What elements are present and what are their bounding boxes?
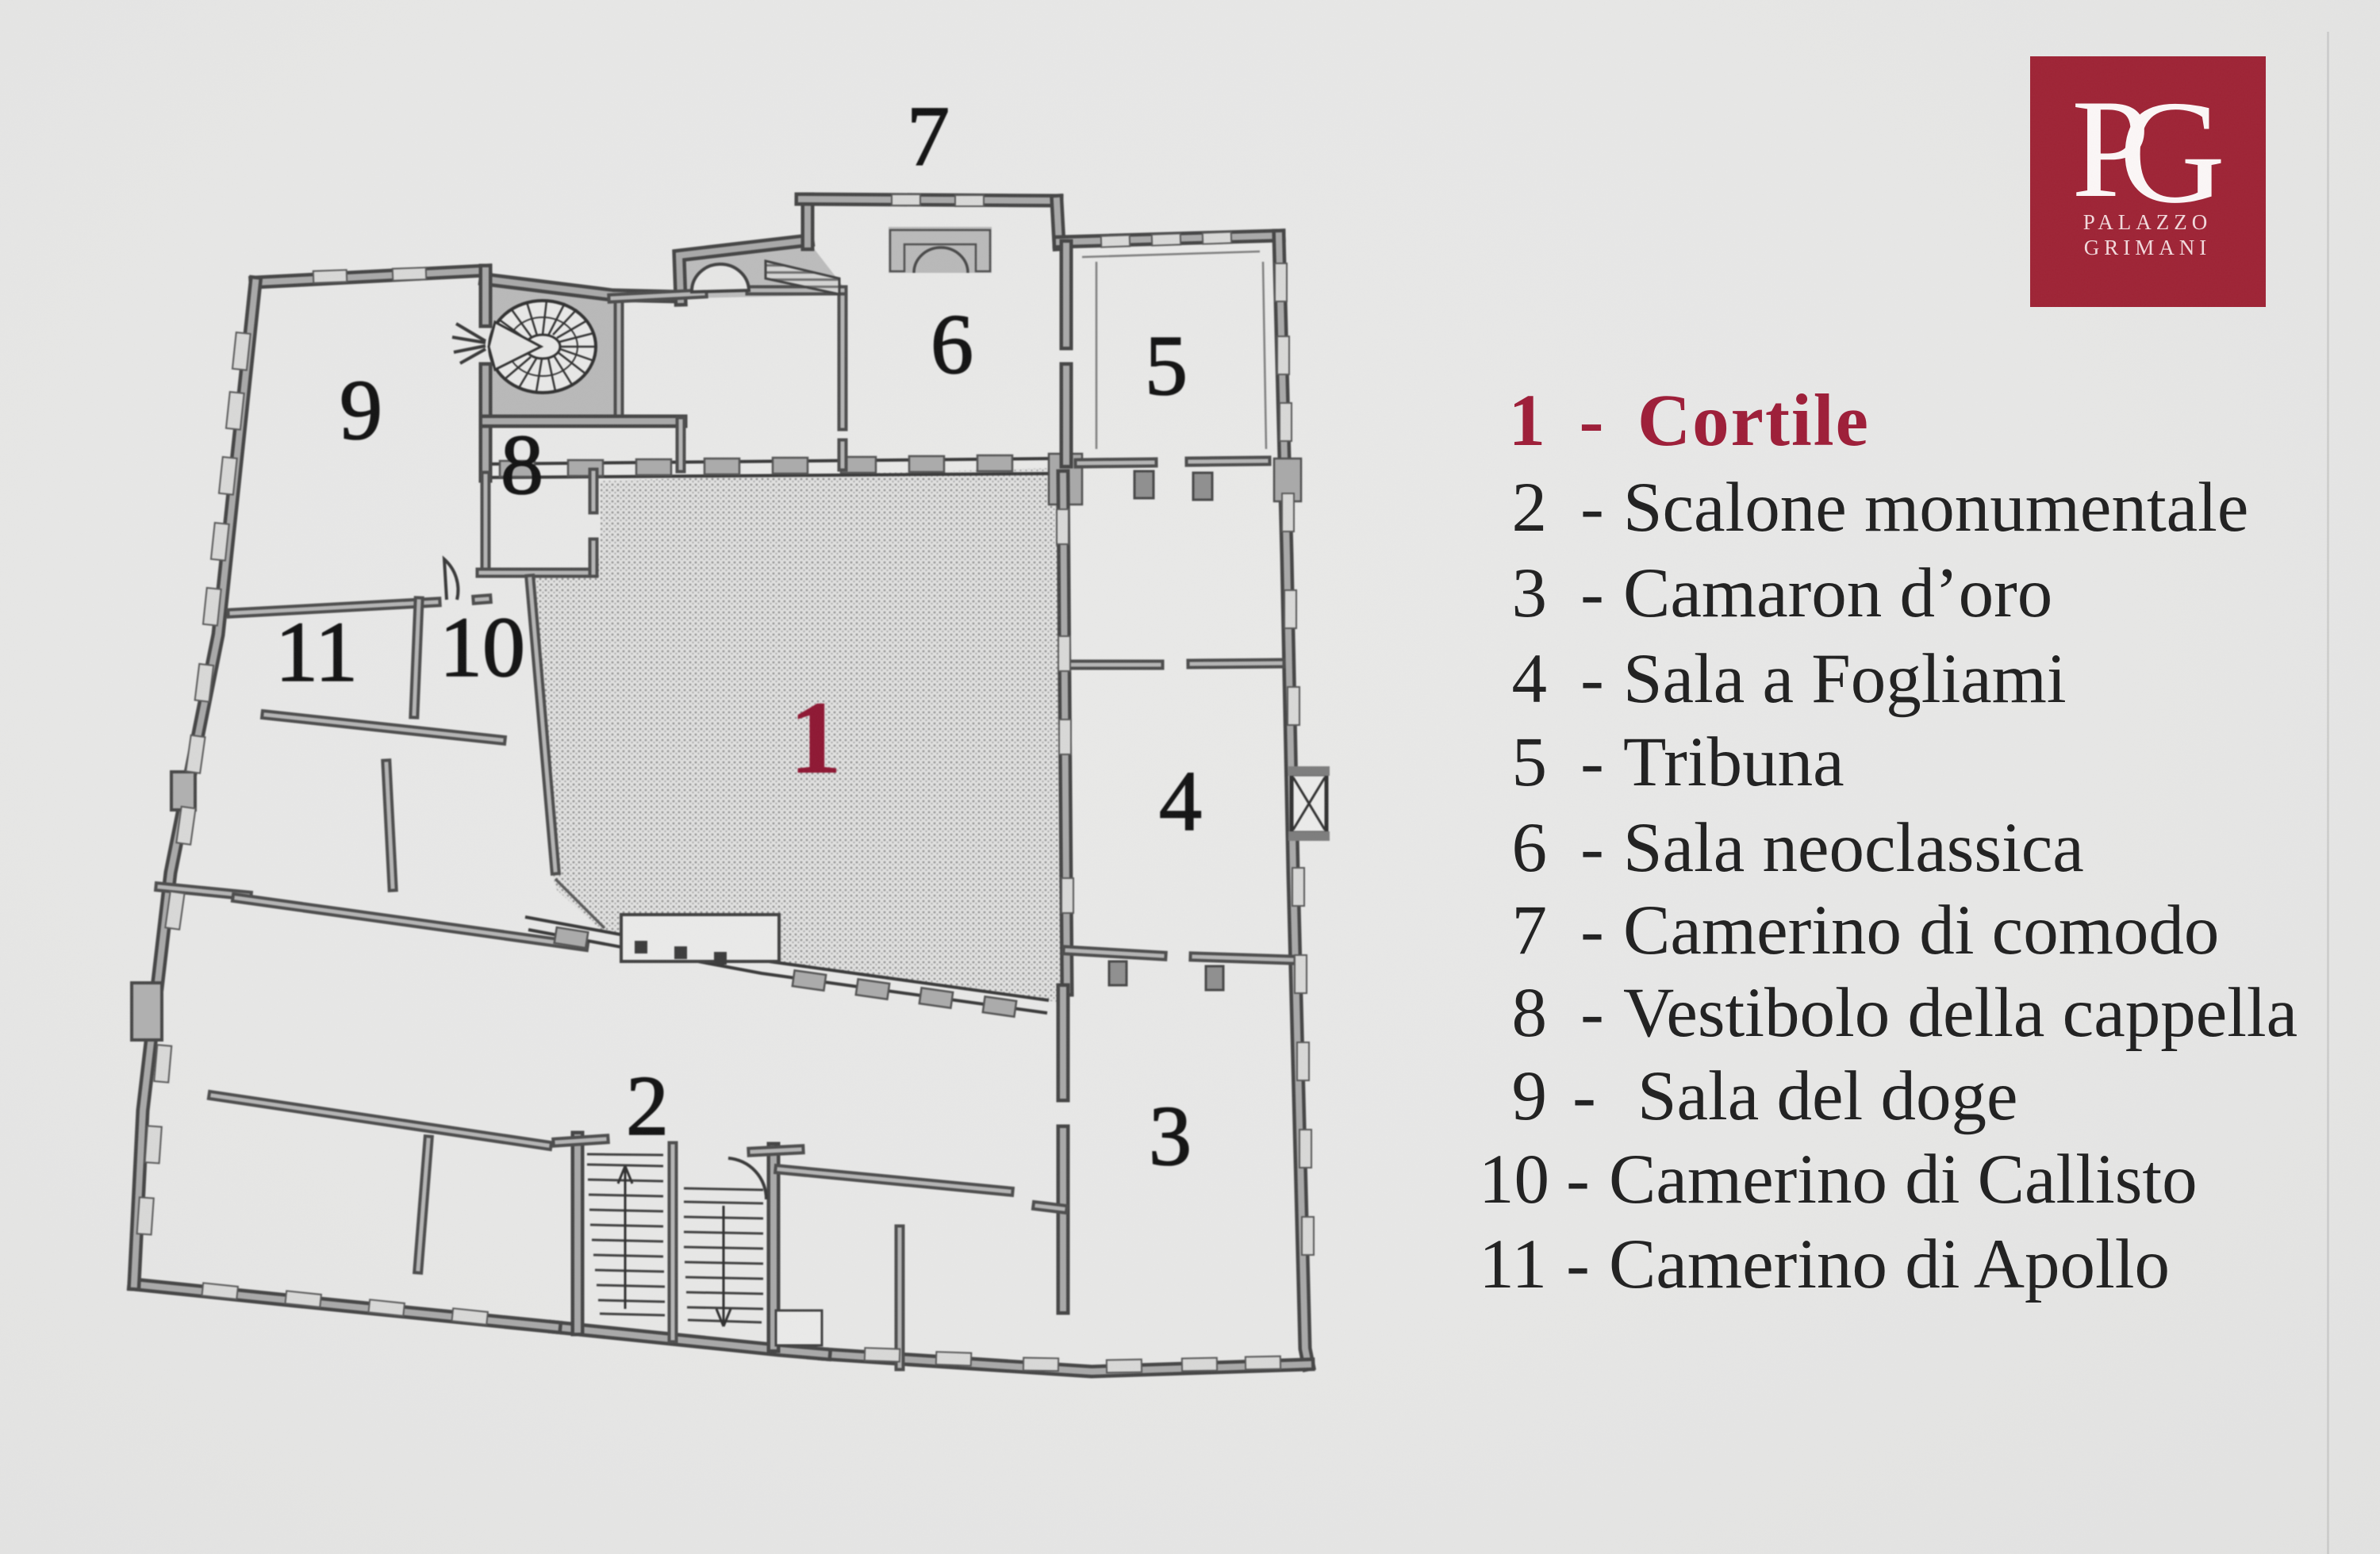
svg-text:1: 1 <box>789 679 842 796</box>
svg-text:PALAZZO: PALAZZO <box>2083 210 2213 234</box>
svg-text:11: 11 <box>275 605 358 700</box>
svg-text:8: 8 <box>501 418 543 512</box>
svg-text:3: 3 <box>1149 1089 1192 1184</box>
svg-text:4: 4 <box>1159 754 1202 849</box>
svg-text:2: 2 <box>626 1059 669 1153</box>
svg-text:7: 7 <box>907 90 950 184</box>
svg-text:GRIMANI: GRIMANI <box>2084 236 2212 259</box>
svg-text:10: 10 <box>440 600 525 695</box>
svg-text:5: 5 <box>1145 319 1188 413</box>
svg-text:6: 6 <box>931 297 973 392</box>
svg-text:9: 9 <box>340 363 382 458</box>
